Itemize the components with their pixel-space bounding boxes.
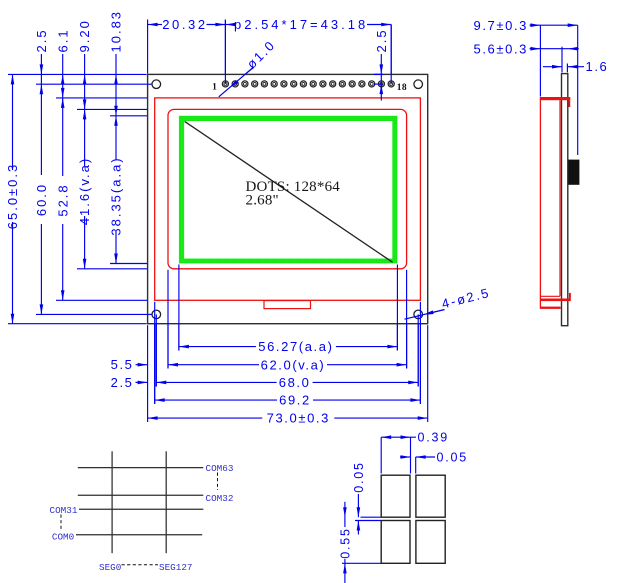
svg-text:2.5: 2.5 xyxy=(111,375,134,390)
svg-text:68.0: 68.0 xyxy=(279,375,311,390)
svg-text:2.5: 2.5 xyxy=(374,28,389,52)
svg-text:41.6(v.a): 41.6(v.a) xyxy=(77,157,92,225)
svg-text:0.05: 0.05 xyxy=(352,461,366,493)
svg-text:COM63: COM63 xyxy=(206,463,234,474)
svg-text:2.5: 2.5 xyxy=(34,28,49,52)
svg-text:18: 18 xyxy=(397,83,407,93)
svg-text:56.27(a.a): 56.27(a.a) xyxy=(258,339,333,354)
svg-text:0.05: 0.05 xyxy=(437,451,469,465)
svg-text:0.39: 0.39 xyxy=(418,431,450,445)
svg-text:COM0: COM0 xyxy=(52,532,74,543)
svg-text:69.2: 69.2 xyxy=(279,393,311,408)
svg-text:COM31: COM31 xyxy=(50,505,78,516)
svg-text:5.5: 5.5 xyxy=(111,357,134,372)
svg-text:20.32: 20.32 xyxy=(162,17,208,32)
svg-text:60.0: 60.0 xyxy=(34,183,49,216)
svg-text:0.55: 0.55 xyxy=(338,527,352,559)
svg-text:SEG0: SEG0 xyxy=(99,562,121,573)
svg-text:73.0±0.3: 73.0±0.3 xyxy=(267,411,330,426)
svg-text:65.0±0.3: 65.0±0.3 xyxy=(5,163,20,230)
svg-text:10.83: 10.83 xyxy=(109,10,124,53)
svg-text:1: 1 xyxy=(212,83,217,93)
svg-text:COM32: COM32 xyxy=(206,493,234,504)
svg-text:6.1: 6.1 xyxy=(55,28,70,52)
svg-text:5.6±0.3: 5.6±0.3 xyxy=(474,41,528,56)
svg-text:52.8: 52.8 xyxy=(55,183,70,216)
svg-text:9.20: 9.20 xyxy=(77,19,92,52)
svg-text:SEG127: SEG127 xyxy=(159,562,192,573)
svg-text:38.35(a.a): 38.35(a.a) xyxy=(109,156,124,235)
svg-text:2.68": 2.68" xyxy=(246,193,279,209)
svg-text:p2.54*17=43.18: p2.54*17=43.18 xyxy=(234,17,368,32)
svg-text:1.6: 1.6 xyxy=(586,59,609,74)
svg-text:62.0(v.a): 62.0(v.a) xyxy=(261,357,326,372)
svg-text:9.7±0.3: 9.7±0.3 xyxy=(474,18,528,33)
